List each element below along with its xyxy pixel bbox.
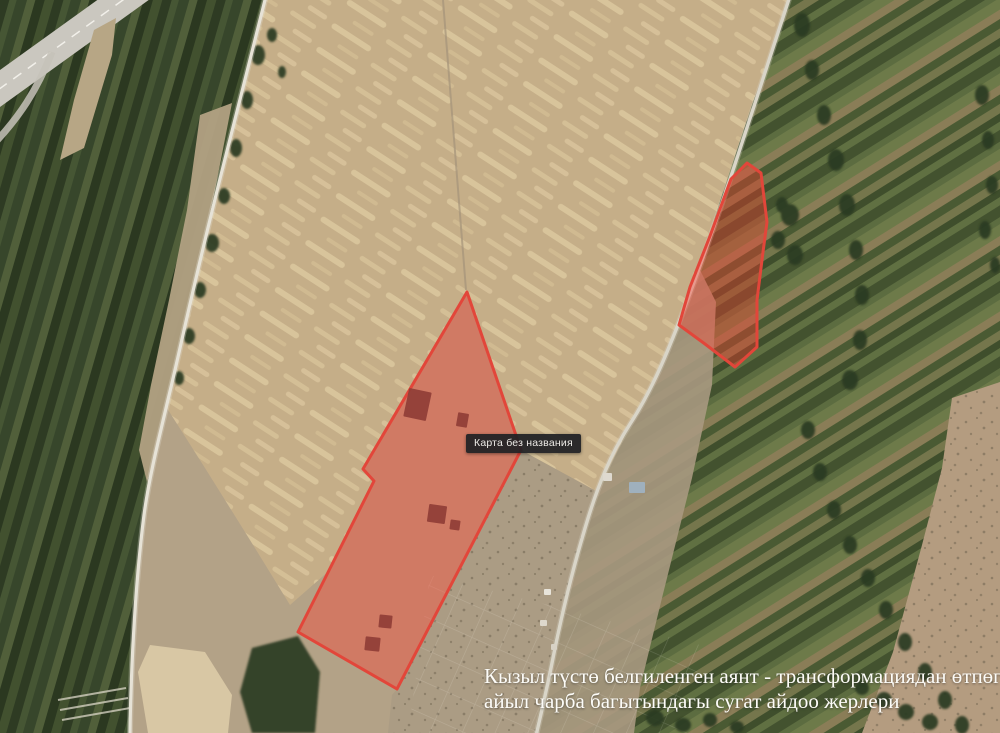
map-tooltip: Карта без названия xyxy=(466,434,581,453)
building xyxy=(629,482,645,493)
building xyxy=(540,620,547,626)
building xyxy=(449,519,460,530)
building xyxy=(551,644,557,650)
caption-line-2: айыл чарба багытындагы сугат айдоо жерле… xyxy=(484,689,1000,714)
building xyxy=(378,614,392,628)
building xyxy=(603,473,612,481)
satellite-map[interactable]: Карта без названия Кызыл түстө белгиленг… xyxy=(0,0,1000,733)
building xyxy=(364,636,380,651)
map-caption: Кызыл түстө белгиленген аянт - трансформ… xyxy=(484,664,1000,714)
map-tooltip-label: Карта без названия xyxy=(474,437,573,449)
building xyxy=(427,504,447,524)
map-canvas[interactable] xyxy=(0,0,1000,733)
building xyxy=(544,589,551,595)
caption-line-1: Кызыл түстө белгиленген аянт - трансформ… xyxy=(484,664,1000,689)
